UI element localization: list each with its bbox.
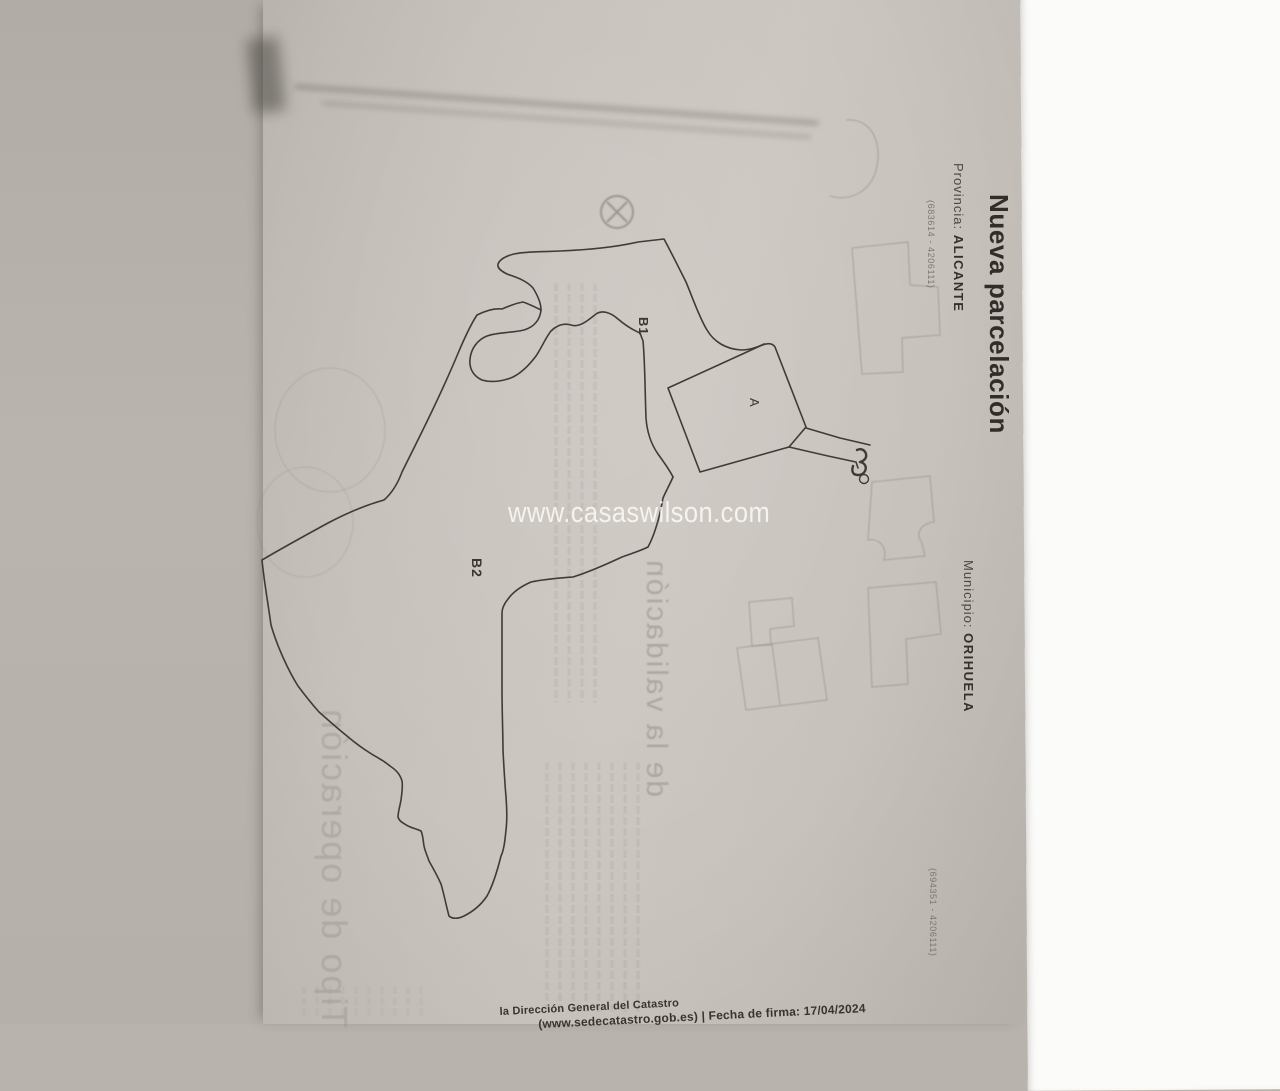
provincia-field: Provincia: ALICANTE [952, 163, 965, 312]
municipio-label: Municipio: [961, 560, 976, 629]
parcel-label-b1: B1 [637, 317, 650, 336]
watermark: www.casaswilson.com [508, 497, 770, 530]
circled-x-icon [601, 196, 633, 228]
document-title: Nueva parcelación [986, 194, 1012, 434]
municipio-field: Municipio: ORIHUELA [962, 560, 975, 713]
provincia-label: Provincia: [951, 163, 966, 230]
parcel-a-access-lines [789, 428, 870, 468]
parcel-label-a: A [748, 398, 761, 408]
parcel-a-outline [668, 344, 806, 472]
municipio-value: ORIHUELA [961, 633, 976, 713]
parcel-label-b2: B2 [470, 558, 484, 578]
map-corner-coordinates-bottom: (694351 - 4206111) [928, 868, 937, 957]
showthrough-map-shapes [257, 120, 941, 710]
parcel-b2-outline [262, 302, 673, 918]
building-marker-circle [860, 475, 869, 484]
parcel-b1-top-boundary [498, 239, 764, 350]
map-corner-coordinates-top: (683614 - 4206111) [926, 200, 935, 289]
provincia-value: ALICANTE [951, 235, 966, 313]
